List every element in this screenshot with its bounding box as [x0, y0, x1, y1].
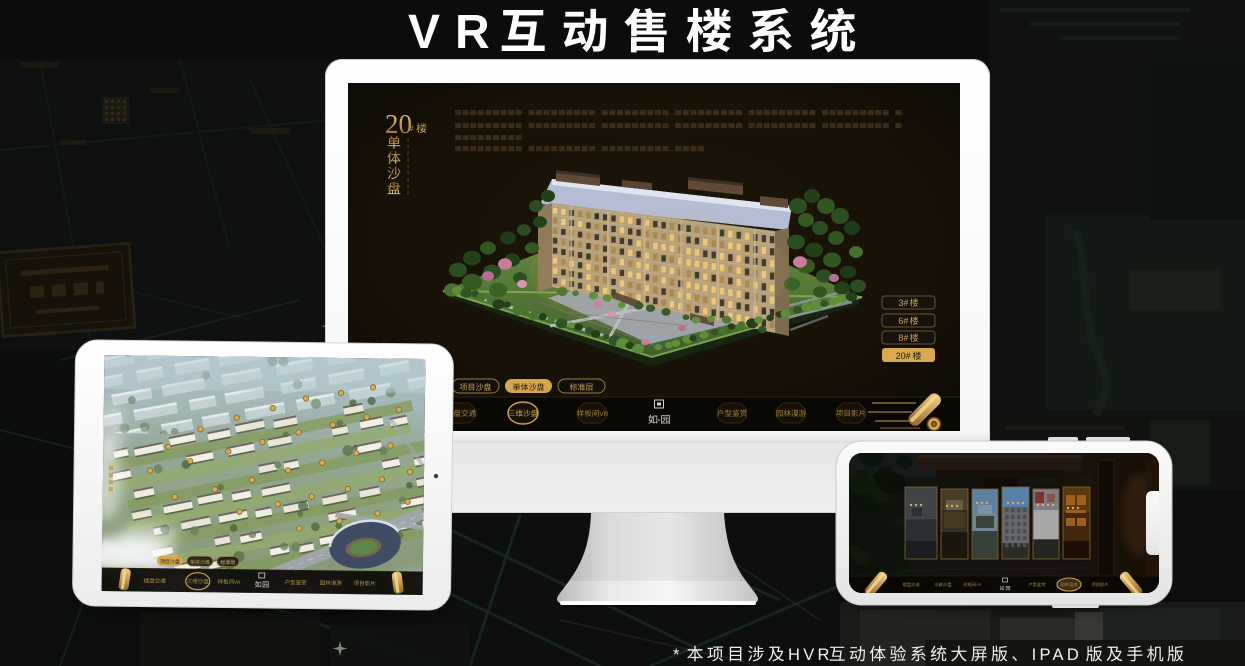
svg-text:20#: 20#	[896, 351, 911, 361]
svg-text:3#: 3#	[898, 298, 908, 308]
svg-text:HVR: HVR	[788, 646, 833, 664]
svg-text:#: #	[409, 124, 414, 133]
svg-text:VR: VR	[599, 411, 608, 418]
svg-text:8#: 8#	[898, 333, 908, 343]
svg-text:VR: VR	[976, 583, 981, 587]
svg-text:20: 20	[385, 109, 412, 139]
svg-text:*: *	[673, 646, 683, 664]
svg-text:IPAD: IPAD	[1032, 646, 1083, 664]
svg-text:VR: VR	[234, 580, 241, 585]
svg-text:6#: 6#	[898, 316, 908, 326]
svg-text:VR: VR	[408, 6, 505, 59]
